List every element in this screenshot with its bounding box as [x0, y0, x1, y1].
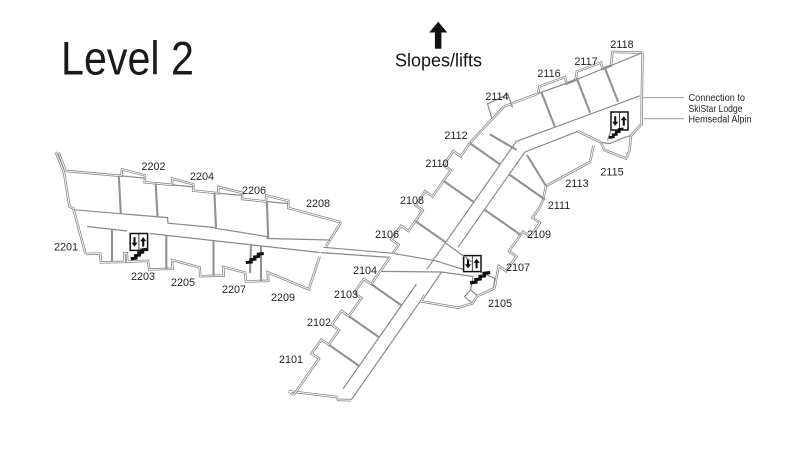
svg-text:2116: 2116	[537, 68, 560, 80]
svg-text:2206: 2206	[242, 185, 266, 197]
svg-text:2112: 2112	[444, 130, 467, 142]
svg-text:2109: 2109	[527, 229, 551, 241]
svg-text:2205: 2205	[171, 277, 195, 289]
svg-text:2207: 2207	[222, 284, 246, 296]
svg-text:2110: 2110	[425, 158, 448, 170]
svg-text:Level 2: Level 2	[61, 32, 194, 85]
svg-text:2107: 2107	[506, 262, 530, 274]
svg-text:2111: 2111	[548, 200, 570, 212]
svg-text:2115: 2115	[600, 167, 623, 179]
svg-text:2118: 2118	[610, 39, 633, 51]
svg-text:2117: 2117	[574, 56, 597, 68]
svg-text:Hemsedal Alpin: Hemsedal Alpin	[689, 114, 752, 126]
svg-text:Slopes/lifts: Slopes/lifts	[395, 50, 482, 71]
svg-text:2104: 2104	[353, 265, 377, 277]
svg-text:2103: 2103	[334, 289, 358, 301]
svg-text:2106: 2106	[375, 229, 399, 241]
svg-text:2108: 2108	[400, 195, 424, 207]
svg-text:2105: 2105	[488, 298, 512, 310]
svg-text:2209: 2209	[271, 292, 295, 304]
svg-text:2102: 2102	[307, 317, 331, 329]
svg-text:2201: 2201	[54, 242, 78, 254]
svg-text:2114: 2114	[485, 91, 508, 103]
svg-text:2208: 2208	[306, 198, 330, 210]
svg-text:2202: 2202	[141, 161, 165, 173]
svg-text:2101: 2101	[279, 354, 303, 366]
svg-text:2113: 2113	[565, 178, 588, 190]
svg-text:2204: 2204	[190, 171, 214, 183]
svg-text:2203: 2203	[131, 271, 155, 283]
